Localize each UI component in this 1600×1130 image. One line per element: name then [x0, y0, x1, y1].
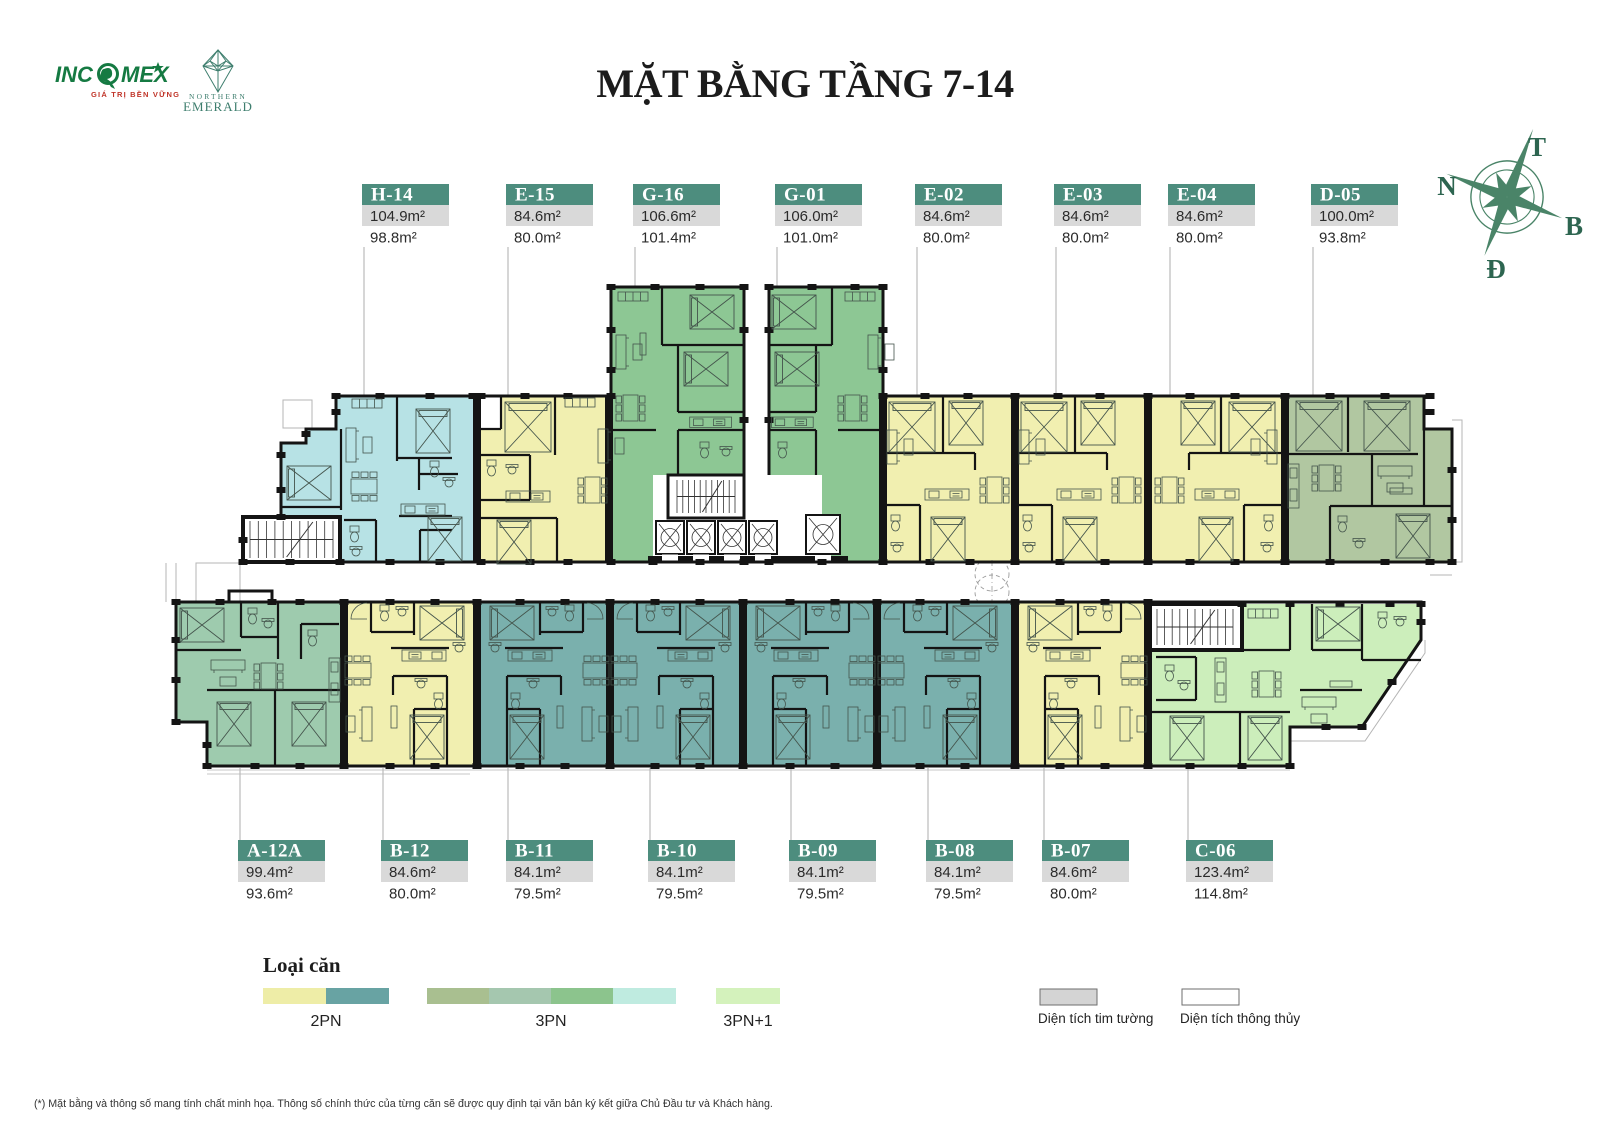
- svg-text:G-01: G-01: [784, 185, 826, 206]
- svg-text:98.8m²: 98.8m²: [370, 230, 417, 247]
- svg-text:MẶT BẰNG TẦNG 7-14: MẶT BẰNG TẦNG 7-14: [596, 61, 1014, 106]
- svg-text:84.1m²: 84.1m²: [656, 864, 703, 881]
- svg-text:Diện tích thông thủy: Diện tích thông thủy: [1180, 1011, 1300, 1026]
- svg-text:84.1m²: 84.1m²: [934, 864, 981, 881]
- svg-text:3PN: 3PN: [535, 1013, 566, 1030]
- svg-text:114.8m²: 114.8m²: [1194, 886, 1248, 903]
- svg-text:80.0m²: 80.0m²: [1062, 230, 1109, 247]
- svg-text:106.6m²: 106.6m²: [641, 208, 696, 225]
- svg-text:84.6m²: 84.6m²: [389, 864, 436, 881]
- svg-text:80.0m²: 80.0m²: [1176, 230, 1223, 247]
- svg-text:101.0m²: 101.0m²: [783, 230, 838, 247]
- svg-text:B: B: [1565, 211, 1583, 241]
- svg-text:N: N: [1437, 171, 1457, 201]
- svg-text:2PN: 2PN: [310, 1013, 341, 1030]
- svg-text:84.6m²: 84.6m²: [1050, 864, 1097, 881]
- svg-text:E-02: E-02: [924, 185, 964, 206]
- svg-text:79.5m²: 79.5m²: [797, 886, 844, 903]
- svg-text:106.0m²: 106.0m²: [783, 208, 838, 225]
- svg-text:80.0m²: 80.0m²: [923, 230, 970, 247]
- svg-text:E-03: E-03: [1063, 185, 1103, 206]
- svg-text:104.9m²: 104.9m²: [370, 208, 425, 225]
- svg-text:3PN+1: 3PN+1: [723, 1013, 772, 1030]
- svg-text:93.8m²: 93.8m²: [1319, 230, 1366, 247]
- svg-text:EMERALD: EMERALD: [183, 99, 253, 114]
- svg-text:84.1m²: 84.1m²: [797, 864, 844, 881]
- svg-text:Đ: Đ: [1486, 254, 1506, 284]
- svg-text:MEX: MEX: [121, 62, 170, 87]
- svg-text:84.6m²: 84.6m²: [923, 208, 970, 225]
- svg-text:B-09: B-09: [798, 841, 838, 862]
- svg-text:93.6m²: 93.6m²: [246, 886, 293, 903]
- svg-text:Diện tích tim tường: Diện tích tim tường: [1038, 1011, 1153, 1026]
- svg-text:A-12A: A-12A: [247, 841, 302, 862]
- svg-text:100.0m²: 100.0m²: [1319, 208, 1374, 225]
- svg-text:B-12: B-12: [390, 841, 430, 862]
- svg-text:99.4m²: 99.4m²: [246, 864, 293, 881]
- svg-text:T: T: [1528, 132, 1546, 162]
- svg-text:80.0m²: 80.0m²: [1050, 886, 1097, 903]
- svg-text:E-04: E-04: [1177, 185, 1217, 206]
- svg-text:E-15: E-15: [515, 185, 555, 206]
- svg-text:80.0m²: 80.0m²: [514, 230, 561, 247]
- svg-text:B-10: B-10: [657, 841, 697, 862]
- svg-text:101.4m²: 101.4m²: [641, 230, 696, 247]
- svg-text:84.6m²: 84.6m²: [1062, 208, 1109, 225]
- svg-text:C-06: C-06: [1195, 841, 1236, 862]
- svg-text:80.0m²: 80.0m²: [389, 886, 436, 903]
- svg-text:(*) Mặt bằng và thông số mang: (*) Mặt bằng và thông số mang tính chất …: [34, 1097, 773, 1110]
- svg-text:123.4m²: 123.4m²: [1194, 864, 1249, 881]
- svg-text:GIÁ TRỊ BỀN VỮNG: GIÁ TRỊ BỀN VỮNG: [91, 89, 180, 99]
- svg-text:79.5m²: 79.5m²: [656, 886, 703, 903]
- svg-text:B-11: B-11: [515, 841, 554, 862]
- svg-text:Loại căn: Loại căn: [263, 953, 341, 977]
- svg-text:G-16: G-16: [642, 185, 684, 206]
- svg-text:79.5m²: 79.5m²: [934, 886, 981, 903]
- svg-text:B-07: B-07: [1051, 841, 1091, 862]
- svg-text:84.6m²: 84.6m²: [1176, 208, 1223, 225]
- svg-text:INC: INC: [55, 62, 94, 87]
- svg-text:H-14: H-14: [371, 185, 413, 206]
- svg-text:84.6m²: 84.6m²: [514, 208, 561, 225]
- svg-text:79.5m²: 79.5m²: [514, 886, 561, 903]
- svg-text:D-05: D-05: [1320, 185, 1361, 206]
- svg-text:B-08: B-08: [935, 841, 975, 862]
- svg-text:84.1m²: 84.1m²: [514, 864, 561, 881]
